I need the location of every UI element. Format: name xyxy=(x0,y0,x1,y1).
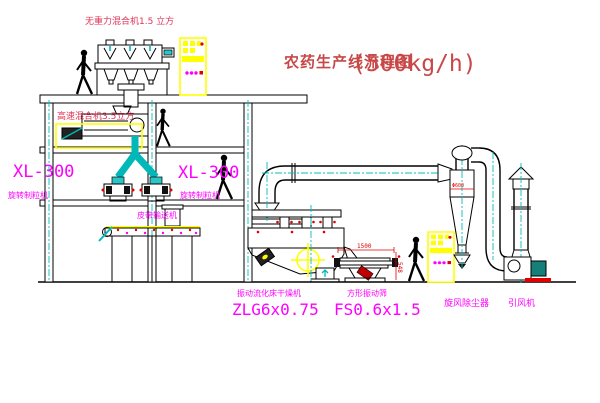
worker-figure xyxy=(157,109,170,147)
worker-figure xyxy=(77,50,92,94)
induced-draft-fan xyxy=(504,257,551,282)
control-cabinet xyxy=(428,232,454,282)
label-belt-conveyor: 皮带输送机 xyxy=(137,210,177,220)
mixer-drop-chute xyxy=(124,90,138,107)
label-xl300-left: XL-300 xyxy=(13,162,74,182)
worker-figure xyxy=(409,237,424,281)
label-xl300-mid: XL-300 xyxy=(178,163,239,183)
zero-gravity-mixer xyxy=(95,40,174,95)
label-fan: 引风机 xyxy=(508,297,535,309)
process-flow-diagram: 农药生产线流程图 (500kg/h) 无重力混合机1.5 立方 高速混合机3.5… xyxy=(0,0,600,403)
fan-base xyxy=(525,278,551,282)
dim-cyclone: Φ600 xyxy=(452,183,464,189)
label-dryer-model: ZLG6x0.75 xyxy=(232,300,319,319)
label-dryer-name: 振动流化床干燥机 xyxy=(237,288,301,298)
slab-top xyxy=(40,95,307,103)
fluid-bed-dryer xyxy=(248,205,344,282)
label-granulator-left: 旋转制粒机 xyxy=(8,190,48,200)
dim-sieve-length: 1500 xyxy=(357,243,372,250)
label-cyclone: 旋风除尘器 xyxy=(444,297,489,309)
slab-third xyxy=(40,200,252,206)
title-capacity: (500kg/h) xyxy=(352,51,477,77)
dim-sieve-height: 548 xyxy=(396,262,403,273)
control-cabinet xyxy=(180,38,206,95)
granulator-left xyxy=(102,177,135,201)
vibrating-sieve xyxy=(332,247,401,282)
fan-motor xyxy=(531,261,546,276)
cad-drawing: 农药生产线流程图 (500kg/h) 无重力混合机1.5 立方 高速混合机3.5… xyxy=(0,0,600,403)
label-sieve-name: 方形振动筛 xyxy=(347,288,387,298)
label-second-mixer: 高速混合机3.5立方 xyxy=(57,110,134,122)
label-sieve-model: FS0.6x1.5 xyxy=(334,300,421,319)
label-granulator-mid: 旋转制粒机 xyxy=(180,190,220,200)
label-top-mixer: 无重力混合机1.5 立方 xyxy=(85,15,174,27)
